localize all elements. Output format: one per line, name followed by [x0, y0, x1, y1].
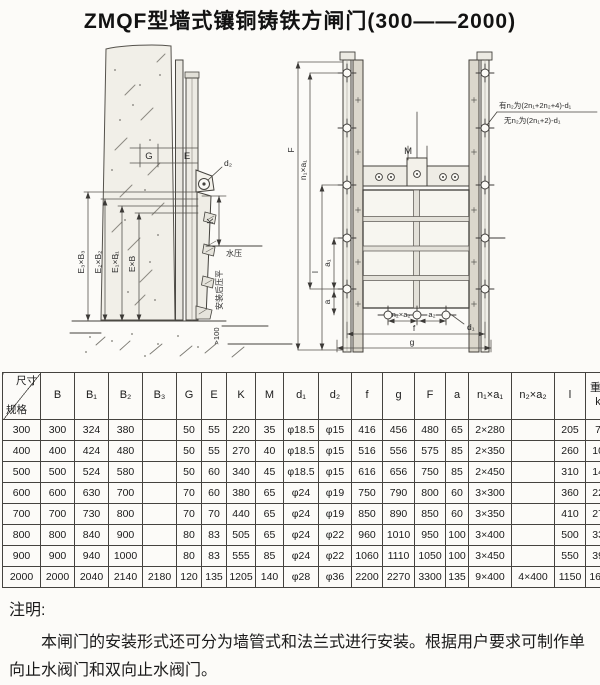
row-value-cell: 60 — [446, 504, 469, 525]
concrete-wall — [101, 45, 175, 320]
row-value-cell: 1000 — [109, 546, 143, 567]
row-value-cell: 107 — [586, 441, 600, 462]
row-value-cell: 480 — [415, 420, 446, 441]
front-left-dims — [298, 62, 343, 350]
row-value-cell: 416 — [352, 420, 383, 441]
column-header: K — [227, 373, 256, 420]
spec-table-body: 300300324380505522035φ18.5φ1541645648065… — [3, 420, 600, 588]
row-value-cell: 65 — [256, 504, 284, 525]
row-value-cell: 220 — [227, 420, 256, 441]
column-header: n₂×a₂ — [512, 373, 555, 420]
ground-hatch — [96, 337, 244, 357]
row-value-cell: 500 — [555, 525, 586, 546]
row-spec-cell: 600 — [3, 483, 41, 504]
row-value-cell: 324 — [75, 420, 109, 441]
notes-body: 本闸门的安装形式还可分为墙管式和法兰式进行安装。根据用户要求可制作单向止水阀门和… — [9, 629, 591, 685]
row-value-cell — [512, 525, 555, 546]
dim-label-f: f — [413, 323, 416, 333]
bolt-count-annotation: 有n₂为(2n₁+2n₂+4)-d₁ 无n₂为(2n₁+2)-d₁ — [487, 100, 597, 125]
row-value-cell: 480 — [109, 441, 143, 462]
row-value-cell: 85 — [446, 462, 469, 483]
corner-header-cell: 尺寸 规格 — [3, 373, 41, 420]
row-value-cell — [143, 483, 177, 504]
row-value-cell: 80 — [177, 546, 202, 567]
corner-label-size: 尺寸 — [16, 375, 37, 388]
row-value-cell: φ24 — [284, 504, 319, 525]
row-value-cell: 2×450 — [469, 462, 512, 483]
dim-label-l: l — [310, 271, 320, 273]
column-header: n₁×a₁ — [469, 373, 512, 420]
row-value-cell — [512, 420, 555, 441]
row-value-cell: 2000 — [41, 567, 75, 588]
row-value-cell: 3×350 — [469, 504, 512, 525]
row-value-cell: φ15 — [319, 441, 352, 462]
min-depth-label: >100 — [212, 327, 221, 344]
corner-label-spec: 规格 — [6, 404, 27, 417]
row-value-cell: 400 — [41, 441, 75, 462]
row-value-cell — [143, 546, 177, 567]
ground — [70, 321, 292, 357]
row-spec-cell: 2000 — [3, 567, 41, 588]
row-value-cell: 516 — [352, 441, 383, 462]
row-value-cell: 100 — [446, 546, 469, 567]
dim-label-E3B3: E₃×B₃ — [76, 250, 86, 273]
row-value-cell: 890 — [383, 504, 415, 525]
row-value-cell: 3300 — [415, 567, 446, 588]
row-value-cell: 555 — [227, 546, 256, 567]
row-value-cell: 60 — [202, 462, 227, 483]
row-value-cell: φ24 — [284, 483, 319, 504]
row-value-cell: φ18.5 — [284, 462, 319, 483]
dim-label-d2: d₂ — [224, 158, 232, 168]
row-value-cell: 85 — [446, 441, 469, 462]
row-value-cell: φ24 — [284, 525, 319, 546]
row-value-cell: 850 — [352, 504, 383, 525]
row-value-cell: 120 — [177, 567, 202, 588]
row-value-cell: 1060 — [352, 546, 383, 567]
row-value-cell: 3×300 — [469, 483, 512, 504]
row-value-cell: 70 — [177, 504, 202, 525]
row-value-cell: 83 — [202, 525, 227, 546]
row-value-cell: 900 — [109, 525, 143, 546]
row-spec-cell: 800 — [3, 525, 41, 546]
row-value-cell: 656 — [383, 462, 415, 483]
d2-leader — [208, 167, 222, 180]
technical-drawing: G E d₂ K 水压 E₃×B₃ — [0, 0, 600, 372]
row-value-cell: 380 — [109, 420, 143, 441]
row-value-cell: 750 — [352, 483, 383, 504]
row-value-cell: 1205 — [227, 567, 256, 588]
row-value-cell: 616 — [352, 462, 383, 483]
row-spec-cell: 500 — [3, 462, 41, 483]
header-row: 尺寸 规格 BB₁B₂B₃GEKMd₁d₂fgFan₁×a₁n₂×a₂l重量 k… — [3, 373, 600, 420]
row-value-cell: φ18.5 — [284, 441, 319, 462]
row-value-cell: 83 — [202, 546, 227, 567]
row-spec-cell: 400 — [3, 441, 41, 462]
row-value-cell: 393 — [586, 546, 600, 567]
row-value-cell: 260 — [555, 441, 586, 462]
row-spec-cell: 900 — [3, 546, 41, 567]
row-value-cell: 140 — [256, 567, 284, 588]
dim-label-a2: a₂ — [428, 310, 435, 319]
front-left-dim-arrows — [296, 62, 337, 350]
row-value-cell: 440 — [227, 504, 256, 525]
table-row: 500500524580506034045φ18.5φ1561665675085… — [3, 462, 600, 483]
row-value-cell: 1150 — [555, 567, 586, 588]
ground-speckles — [85, 333, 199, 357]
row-value-cell: 135 — [446, 567, 469, 588]
dim-label-g: g — [410, 337, 415, 347]
annotation-line1: 有n₂为(2n₁+2n₂+4)-d₁ — [499, 100, 572, 110]
column-header: a — [446, 373, 469, 420]
row-value-cell: 900 — [41, 546, 75, 567]
row-value-cell — [143, 441, 177, 462]
row-value-cell: φ28 — [284, 567, 319, 588]
row-value-cell: 205 — [555, 420, 586, 441]
row-value-cell: 45 — [256, 462, 284, 483]
spec-table-head: 尺寸 规格 BB₁B₂B₃GEKMd₁d₂fgFan₁×a₁n₂×a₂l重量 k… — [3, 373, 600, 420]
row-value-cell — [512, 546, 555, 567]
row-value-cell: φ19 — [319, 504, 352, 525]
row-value-cell: 65 — [256, 483, 284, 504]
row-value-cell: 2040 — [75, 567, 109, 588]
row-value-cell: 80 — [177, 525, 202, 546]
row-value-cell: 790 — [383, 483, 415, 504]
column-header: l — [555, 373, 586, 420]
side-view: G E d₂ K 水压 E₃×B₃ — [70, 45, 292, 357]
row-value-cell: 145 — [586, 462, 600, 483]
row-value-cell: 65 — [446, 420, 469, 441]
table-row: 9009009401000808355585φ24φ22106011101050… — [3, 546, 600, 567]
column-header: F — [415, 373, 446, 420]
row-value-cell: 3×450 — [469, 546, 512, 567]
dim-label-a1: a₁ — [322, 259, 332, 267]
row-value-cell — [512, 441, 555, 462]
row-value-cell: φ19 — [319, 483, 352, 504]
column-header: g — [383, 373, 415, 420]
row-value-cell: 340 — [227, 462, 256, 483]
gate-grid — [363, 190, 469, 308]
column-header: d₂ — [319, 373, 352, 420]
column-header: B₁ — [75, 373, 109, 420]
row-value-cell: 380 — [227, 483, 256, 504]
row-value-cell: 1050 — [415, 546, 446, 567]
row-value-cell — [143, 525, 177, 546]
row-value-cell: 940 — [75, 546, 109, 567]
row-value-cell: 575 — [415, 441, 446, 462]
row-value-cell: 424 — [75, 441, 109, 462]
column-header: M — [256, 373, 284, 420]
row-value-cell: 310 — [555, 462, 586, 483]
row-value-cell: 2200 — [352, 567, 383, 588]
water-pressure-label: 水压 — [226, 248, 242, 258]
row-value-cell: 410 — [555, 504, 586, 525]
notes-heading: 注明: — [9, 596, 591, 620]
row-value-cell — [143, 420, 177, 441]
gate-leaf-section — [196, 170, 216, 319]
row-value-cell: 500 — [41, 462, 75, 483]
row-value-cell: 456 — [383, 420, 415, 441]
column-header: B — [41, 373, 75, 420]
row-value-cell: 100 — [446, 525, 469, 546]
row-value-cell: 225 — [586, 483, 600, 504]
dim-label-EB: E×B — [127, 256, 137, 273]
row-value-cell: 70 — [586, 420, 600, 441]
row-value-cell: 40 — [256, 441, 284, 462]
dim-label-E1B1: E₁×B₁ — [110, 251, 120, 273]
row-value-cell: 1010 — [383, 525, 415, 546]
table-row: 700700730800707044065φ24φ19850890850603×… — [3, 504, 600, 525]
row-value-cell: 360 — [555, 483, 586, 504]
column-header: E — [202, 373, 227, 420]
row-value-cell: φ22 — [319, 525, 352, 546]
row-value-cell: 270 — [227, 441, 256, 462]
row-value-cell: 70 — [177, 483, 202, 504]
row-value-cell: 55 — [202, 420, 227, 441]
row-value-cell: 330 — [586, 525, 600, 546]
row-value-cell: 3×400 — [469, 525, 512, 546]
dim-label-F: F — [286, 147, 296, 152]
row-value-cell: 700 — [109, 483, 143, 504]
row-value-cell: φ22 — [319, 546, 352, 567]
row-value-cell: 580 — [109, 462, 143, 483]
row-value-cell: 60 — [202, 483, 227, 504]
row-value-cell — [512, 462, 555, 483]
column-header: d₁ — [284, 373, 319, 420]
row-value-cell: 800 — [415, 483, 446, 504]
row-value-cell: 300 — [41, 420, 75, 441]
dim-label-n2a2: n₂×a₂ — [392, 310, 411, 319]
row-value-cell: 70 — [202, 504, 227, 525]
row-value-cell: 950 — [415, 525, 446, 546]
row-value-cell — [143, 462, 177, 483]
row-value-cell — [143, 504, 177, 525]
row-value-cell: 800 — [109, 504, 143, 525]
row-spec-cell: 700 — [3, 504, 41, 525]
row-value-cell — [512, 504, 555, 525]
dim-label-n1a1: n₁×a₁ — [298, 160, 308, 180]
install-note-label: 安装后压平 — [214, 270, 224, 310]
dim-label-a: a — [322, 299, 332, 304]
frame-section — [176, 60, 200, 320]
frame-right — [469, 52, 492, 352]
row-value-cell: 50 — [177, 441, 202, 462]
column-header: f — [352, 373, 383, 420]
row-value-cell: 135 — [202, 567, 227, 588]
row-value-cell: φ18.5 — [284, 420, 319, 441]
row-value-cell: 730 — [75, 504, 109, 525]
column-header: B₃ — [143, 373, 177, 420]
column-header: B₂ — [109, 373, 143, 420]
row-value-cell: 700 — [41, 504, 75, 525]
row-value-cell: 85 — [256, 546, 284, 567]
row-value-cell — [512, 483, 555, 504]
table-row: 800800840900808350565φ24φ229601010950100… — [3, 525, 600, 546]
row-value-cell: 2140 — [109, 567, 143, 588]
row-value-cell: φ15 — [319, 462, 352, 483]
table-row: 200020002040214021801201351205140φ28φ362… — [3, 567, 600, 588]
row-value-cell: 275 — [586, 504, 600, 525]
row-value-cell: 960 — [352, 525, 383, 546]
row-value-cell: 750 — [415, 462, 446, 483]
row-value-cell: 600 — [41, 483, 75, 504]
gate-top-beam — [363, 158, 469, 186]
row-value-cell: 9×400 — [469, 567, 512, 588]
spec-table: 尺寸 规格 BB₁B₂B₃GEKMd₁d₂fgFan₁×a₁n₂×a₂l重量 k… — [2, 372, 600, 588]
dim-label-M: M — [404, 146, 412, 157]
dim-label-E2B2: E₂×B₂ — [93, 251, 103, 274]
annotation-line2: 无n₂为(2n₁+2)-d₁ — [504, 115, 561, 125]
notes-section: 注明: 本闸门的安装形式还可分为墙管式和法兰式进行安装。根据用户要求可制作单向止… — [9, 596, 591, 685]
row-value-cell: 850 — [415, 504, 446, 525]
row-value-cell: 524 — [75, 462, 109, 483]
row-value-cell: 65 — [256, 525, 284, 546]
row-value-cell: 800 — [41, 525, 75, 546]
dim-label-d1: d₁ — [467, 322, 475, 332]
row-value-cell: 556 — [383, 441, 415, 462]
dim-label-G: G — [145, 151, 152, 162]
row-value-cell: 1650 — [586, 567, 600, 588]
frame-left — [340, 52, 363, 352]
table-row: 400400424480505527040φ18.5φ1551655657585… — [3, 441, 600, 462]
row-value-cell: φ24 — [284, 546, 319, 567]
row-value-cell: 2180 — [143, 567, 177, 588]
row-value-cell: 50 — [177, 462, 202, 483]
row-value-cell: 55 — [202, 441, 227, 462]
row-value-cell: 840 — [75, 525, 109, 546]
row-value-cell: 550 — [555, 546, 586, 567]
row-value-cell: 2×280 — [469, 420, 512, 441]
row-value-cell: 60 — [446, 483, 469, 504]
row-value-cell: 1110 — [383, 546, 415, 567]
row-value-cell: φ36 — [319, 567, 352, 588]
table-row: 600600630700706038065φ24φ19750790800603×… — [3, 483, 600, 504]
row-value-cell: φ15 — [319, 420, 352, 441]
row-value-cell: 50 — [177, 420, 202, 441]
row-value-cell: 505 — [227, 525, 256, 546]
row-spec-cell: 300 — [3, 420, 41, 441]
row-value-cell: 4×400 — [512, 567, 555, 588]
column-header: G — [177, 373, 202, 420]
dim-label-E: E — [184, 151, 190, 162]
table-row: 300300324380505522035φ18.5φ1541645648065… — [3, 420, 600, 441]
row-value-cell: 630 — [75, 483, 109, 504]
row-value-cell: 2270 — [383, 567, 415, 588]
row-value-cell: 2×350 — [469, 441, 512, 462]
front-view: M — [286, 52, 597, 352]
row-value-cell: 35 — [256, 420, 284, 441]
column-header: 重量 kg — [586, 373, 600, 420]
dim-label-K: K — [205, 218, 215, 224]
